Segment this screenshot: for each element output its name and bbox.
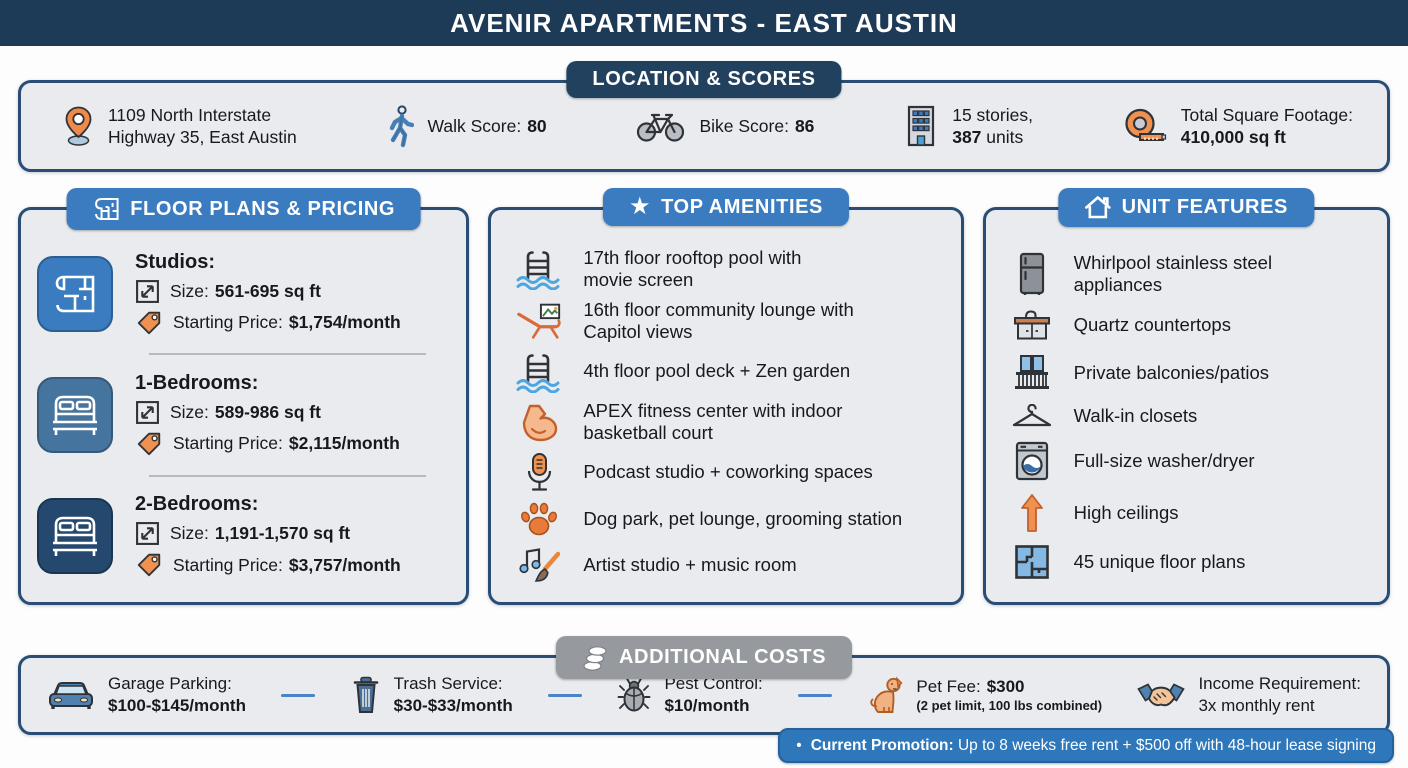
cost-item-pest: Pest Control: $10/month	[617, 673, 762, 717]
divider	[281, 694, 315, 697]
amenity-text: 16th floor community lounge with Capitol…	[583, 299, 853, 344]
feature-text: Private balconies/patios	[1074, 362, 1269, 385]
feature-item: Walk-in closets	[1010, 404, 1375, 430]
divider	[548, 694, 582, 697]
handshake-icon	[1137, 680, 1185, 711]
floor-plan-size: Size:561-695 sq ft	[135, 279, 401, 304]
floor-plan-name: Studios:	[135, 251, 401, 274]
tape-measure-icon	[1123, 108, 1167, 144]
trash-can-icon	[351, 676, 381, 714]
feature-text: 45 unique floor plans	[1074, 551, 1246, 574]
up-arrow-icon	[1010, 493, 1054, 533]
amenity-text: Podcast studio + coworking spaces	[583, 461, 872, 484]
infographic: { "title": "AVENIR APARTMENTS - EAST AUS…	[0, 0, 1408, 768]
blueprint-icon	[92, 195, 120, 223]
bike-score-item: Bike Score:86	[636, 110, 814, 142]
amenity-text: Dog park, pet lounge, grooming station	[583, 508, 902, 531]
floor-plan-name: 1-Bedrooms:	[135, 372, 400, 395]
unit-features-card: Whirlpool stainless steel appliances Qua…	[983, 207, 1390, 605]
location-scores-badge: LOCATION & SCORES	[566, 61, 841, 98]
bug-icon	[617, 677, 651, 714]
amenity-item: 17th floor rooftop pool with movie scree…	[515, 247, 948, 292]
building-icon	[904, 105, 938, 147]
cost-value: $30-$33/month	[394, 695, 513, 717]
resize-icon	[135, 279, 160, 304]
main-columns: FLOOR PLANS & PRICING Studios:	[18, 207, 1390, 605]
feature-item: Full-size washer/dryer	[1010, 441, 1375, 481]
amenity-item: Podcast studio + coworking spaces	[515, 452, 948, 494]
location-scores-badge-label: LOCATION & SCORES	[592, 68, 815, 91]
amenities-badge-label: TOP AMENITIES	[661, 196, 823, 219]
amenities-card: 17th floor rooftop pool with movie scree…	[488, 207, 963, 605]
stories-units-item: 15 stories,387 units	[904, 104, 1033, 149]
hanger-icon	[1010, 404, 1054, 430]
amenities-column: ★ TOP AMENITIES 17th floor rooftop pool …	[488, 207, 963, 605]
feature-item: Quartz countertops	[1010, 308, 1375, 342]
floor-plan-icon	[37, 256, 113, 332]
house-icon	[1085, 195, 1112, 220]
divider	[798, 694, 832, 697]
price-tag-icon	[135, 551, 163, 579]
washer-icon	[1010, 441, 1054, 481]
additional-costs-section: ADDITIONAL COSTS Garage Parking: $100-$1…	[18, 655, 1390, 735]
feature-item: 45 unique floor plans	[1010, 544, 1375, 580]
amenity-item: Dog park, pet lounge, grooming station	[515, 500, 948, 538]
stories-units-text: 15 stories,387 units	[952, 104, 1033, 149]
square-footage-item: Total Square Footage:410,000 sq ft	[1123, 104, 1353, 149]
amenity-text: Artist studio + music room	[583, 554, 796, 577]
balcony-icon	[1010, 354, 1054, 392]
map-pin-icon	[63, 106, 94, 146]
address-item: 1109 North Interstate Highway 35, East A…	[63, 104, 297, 149]
walk-score-text: Walk Score:80	[428, 115, 547, 137]
bed-icon	[37, 377, 113, 453]
price-tag-icon	[135, 309, 163, 337]
feature-text: High ceilings	[1074, 502, 1179, 525]
floor-plan-size: Size:1,191-1,570 sq ft	[135, 521, 401, 546]
divider	[149, 353, 426, 355]
pool-ladder-icon	[515, 248, 563, 290]
bed-icon	[37, 498, 113, 574]
car-icon	[47, 680, 95, 711]
page-title: AVENIR APARTMENTS - EAST AUSTIN	[450, 8, 958, 39]
floor-plan-item-studios: Studios: Size:561-695 sq ft Starting Pri…	[37, 251, 454, 337]
floor-plans-card: Studios: Size:561-695 sq ft Starting Pri…	[18, 207, 469, 605]
square-footage-text: Total Square Footage:410,000 sq ft	[1181, 104, 1353, 149]
unit-features-badge: UNIT FEATURES	[1059, 188, 1314, 227]
amenity-text: 17th floor rooftop pool with movie scree…	[583, 247, 801, 292]
floor-plan-item-2bed: 2-Bedrooms: Size:1,191-1,570 sq ft Start…	[37, 493, 454, 579]
dog-icon	[867, 676, 903, 714]
floor-plan-price: Starting Price:$1,754/month	[135, 309, 401, 337]
countertop-icon	[1010, 308, 1054, 342]
cost-item-income: Income Requirement: 3x monthly rent	[1137, 673, 1361, 717]
additional-costs-badge: ADDITIONAL COSTS	[556, 636, 852, 679]
unit-features-column: UNIT FEATURES Whirlpool stainless steel …	[983, 207, 1390, 605]
cost-value: $100-$145/month	[108, 695, 246, 717]
unit-features-badge-label: UNIT FEATURES	[1122, 196, 1288, 219]
price-tag-icon	[135, 430, 163, 458]
additional-costs-badge-label: ADDITIONAL COSTS	[619, 646, 826, 669]
cost-value: 3x monthly rent	[1198, 695, 1361, 717]
coins-icon	[582, 643, 609, 672]
paw-print-icon	[515, 500, 563, 538]
walking-person-icon	[387, 105, 414, 148]
bicycle-icon	[636, 110, 685, 142]
promotion-label: Current Promotion:	[811, 737, 954, 754]
address-text: 1109 North Interstate Highway 35, East A…	[108, 104, 297, 149]
floor-plan-price: Starting Price:$3,757/month	[135, 551, 401, 579]
cost-note: (2 pet limit, 100 lbs combined)	[916, 698, 1102, 715]
floor-plan-item-1bed: 1-Bedrooms: Size:589-986 sq ft Starting …	[37, 372, 454, 458]
cost-label: Garage Parking:	[108, 673, 246, 695]
promotion-text: Up to 8 weeks free rent + $500 off with …	[958, 737, 1376, 754]
cost-item-garage: Garage Parking: $100-$145/month	[47, 673, 246, 717]
divider	[149, 475, 426, 477]
promotion-banner: • Current Promotion: Up to 8 weeks free …	[778, 728, 1394, 763]
floor-plan-size: Size:589-986 sq ft	[135, 400, 400, 425]
feature-item: Private balconies/patios	[1010, 354, 1375, 392]
cost-label: Trash Service:	[394, 673, 513, 695]
cost-item-trash: Trash Service: $30-$33/month	[351, 673, 513, 717]
bike-score-text: Bike Score:86	[699, 115, 814, 137]
floor-plans-badge-label: FLOOR PLANS & PRICING	[130, 198, 395, 221]
cost-label: Pet Fee:	[916, 677, 980, 696]
feature-text: Walk-in closets	[1074, 405, 1198, 428]
amenities-badge: ★ TOP AMENITIES	[603, 188, 849, 226]
floor-plan-grid-icon	[1010, 544, 1054, 580]
title-bar: AVENIR APARTMENTS - EAST AUSTIN	[0, 0, 1408, 46]
amenity-item: 16th floor community lounge with Capitol…	[515, 299, 948, 344]
amenity-item: APEX fitness center with indoor basketba…	[515, 400, 948, 445]
amenity-item: Artist studio + music room	[515, 545, 948, 585]
refrigerator-icon	[1010, 252, 1054, 296]
feature-item: High ceilings	[1010, 493, 1375, 533]
walk-score-item: Walk Score:80	[387, 105, 547, 148]
music-art-icon	[515, 545, 563, 585]
amenity-text: 4th floor pool deck + Zen garden	[583, 360, 850, 383]
pool-ladder-icon	[515, 351, 563, 393]
cost-value: $10/month	[664, 695, 762, 717]
floor-plan-price: Starting Price:$2,115/month	[135, 430, 400, 458]
feature-text: Whirlpool stainless steel appliances	[1074, 252, 1272, 297]
floor-plans-badge: FLOOR PLANS & PRICING	[66, 188, 421, 230]
flexed-bicep-icon	[515, 402, 563, 442]
star-icon: ★	[629, 195, 651, 219]
feature-text: Quartz countertops	[1074, 314, 1231, 337]
amenity-item: 4th floor pool deck + Zen garden	[515, 351, 948, 393]
resize-icon	[135, 521, 160, 546]
feature-text: Full-size washer/dryer	[1074, 450, 1255, 473]
floor-plans-column: FLOOR PLANS & PRICING Studios:	[18, 207, 469, 605]
cost-value: $300	[987, 677, 1025, 696]
amenity-text: APEX fitness center with indoor basketba…	[583, 400, 842, 445]
location-scores-section: LOCATION & SCORES 1109 North Interstate …	[18, 80, 1390, 172]
lounge-chair-icon	[515, 302, 563, 340]
microphone-icon	[515, 452, 563, 494]
resize-icon	[135, 400, 160, 425]
cost-item-pet: Pet Fee:$300 (2 pet limit, 100 lbs combi…	[867, 676, 1102, 715]
floor-plan-name: 2-Bedrooms:	[135, 493, 401, 516]
cost-label: Income Requirement:	[1198, 673, 1361, 695]
bullet-icon: •	[796, 737, 801, 755]
feature-item: Whirlpool stainless steel appliances	[1010, 252, 1375, 297]
